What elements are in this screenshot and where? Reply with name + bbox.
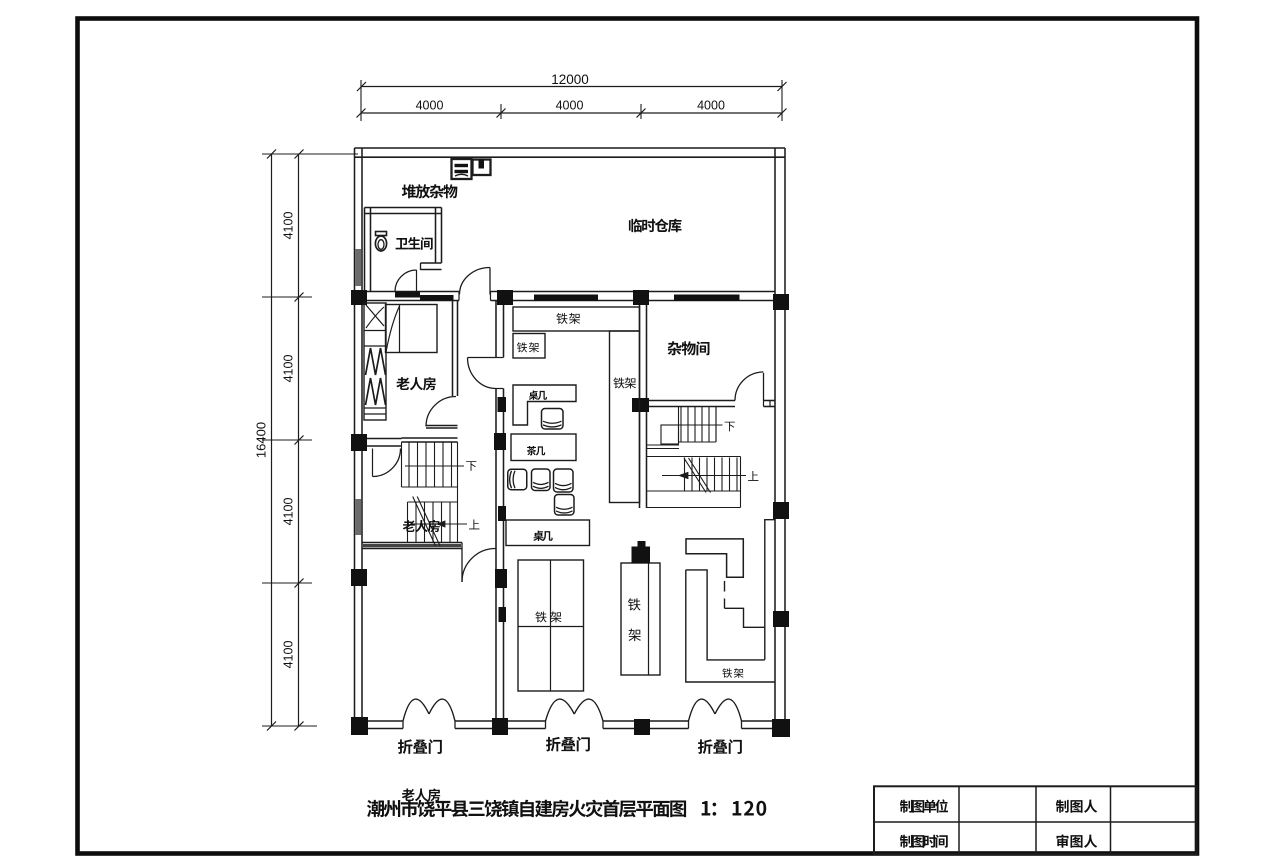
svg-text:4100: 4100: [282, 212, 296, 240]
svg-text:4100: 4100: [282, 355, 296, 383]
svg-text:4100: 4100: [282, 641, 296, 669]
svg-text:4000: 4000: [697, 99, 725, 113]
svg-text:16400: 16400: [254, 422, 269, 458]
svg-text:4000: 4000: [556, 99, 584, 113]
svg-text:12000: 12000: [551, 72, 589, 87]
svg-text:4100: 4100: [282, 498, 296, 526]
svg-text:4000: 4000: [416, 99, 444, 113]
